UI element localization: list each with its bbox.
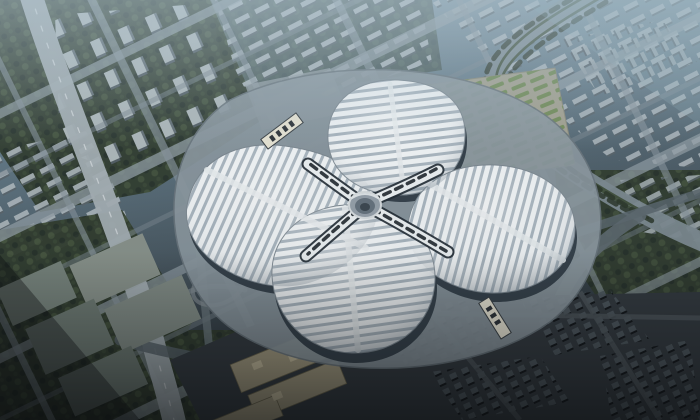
aerial-scene: [0, 0, 700, 420]
vignette: [0, 0, 700, 420]
aerial-rendering: [0, 0, 700, 420]
